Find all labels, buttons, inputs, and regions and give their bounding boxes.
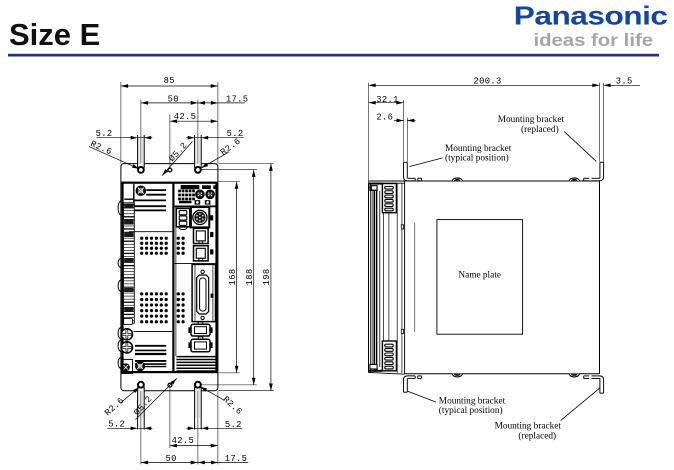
svg-text:42.5: 42.5	[172, 436, 195, 446]
svg-text:Size E: Size E	[9, 17, 100, 52]
svg-text:(replaced): (replaced)	[518, 431, 556, 442]
svg-text:5.2: 5.2	[108, 419, 125, 429]
svg-text:Name plate: Name plate	[458, 270, 501, 280]
svg-text:Mounting bracket: Mounting bracket	[495, 422, 562, 432]
svg-text:32.1: 32.1	[376, 95, 399, 105]
svg-text:17.5: 17.5	[225, 454, 248, 464]
svg-text:(typical position): (typical position)	[439, 405, 503, 416]
svg-text:50: 50	[168, 94, 179, 104]
svg-text:50: 50	[166, 454, 177, 464]
svg-text:3.5: 3.5	[616, 76, 633, 86]
svg-text:2.6: 2.6	[376, 112, 393, 122]
svg-text:188: 188	[245, 269, 255, 286]
svg-text:Mounting bracket: Mounting bracket	[445, 144, 512, 154]
svg-text:85: 85	[164, 76, 175, 86]
svg-text:Mounting bracket: Mounting bracket	[439, 396, 506, 406]
svg-text:5.2: 5.2	[96, 129, 113, 139]
svg-text:42.5: 42.5	[174, 112, 197, 122]
svg-text:Mounting bracket: Mounting bracket	[498, 115, 565, 125]
svg-text:Panasonic: Panasonic	[514, 2, 668, 30]
svg-text:17.5: 17.5	[226, 94, 249, 104]
svg-text:200.3: 200.3	[474, 76, 502, 86]
svg-text:5.2: 5.2	[225, 420, 242, 430]
svg-text:ideas for life: ideas for life	[534, 31, 653, 50]
svg-text:198: 198	[262, 269, 272, 286]
svg-text:(typical position): (typical position)	[445, 153, 509, 164]
svg-text:168: 168	[228, 269, 238, 286]
svg-text:(replaced): (replaced)	[521, 124, 559, 135]
